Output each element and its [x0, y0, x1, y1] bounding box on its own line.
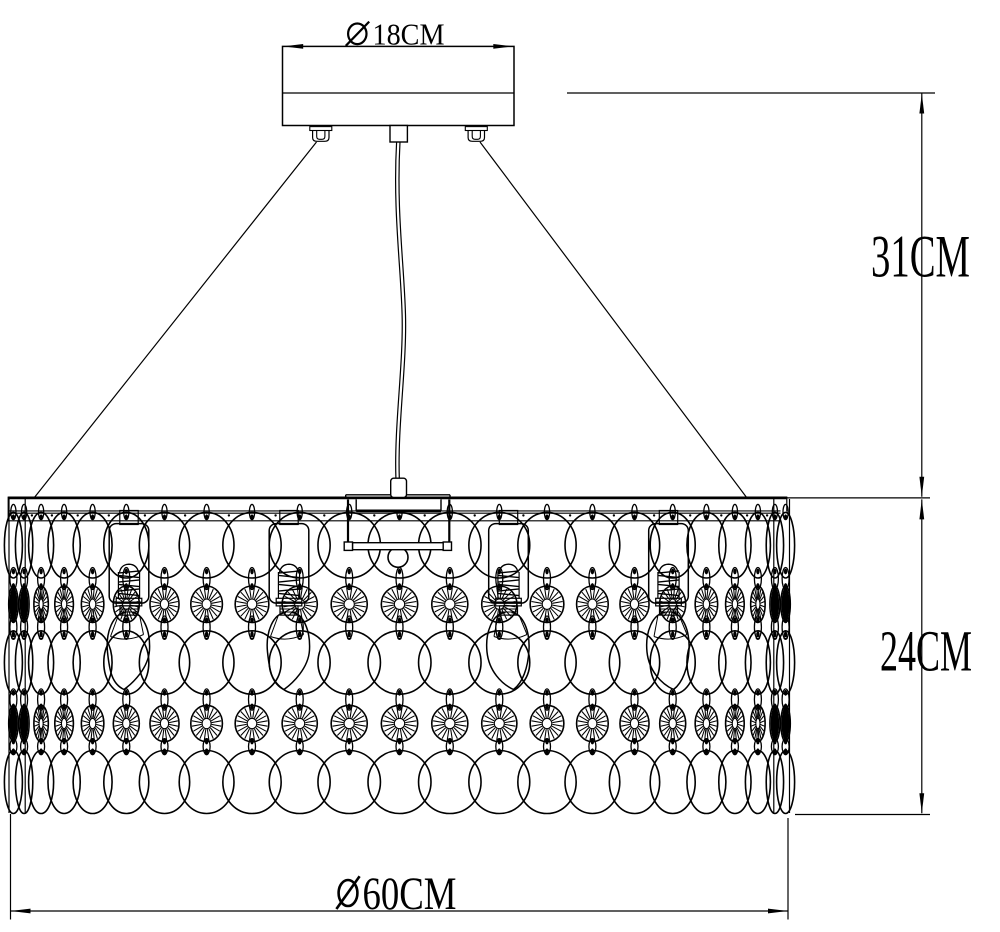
svg-text:18CM: 18CM: [373, 17, 445, 52]
svg-text:31CM: 31CM: [871, 224, 970, 290]
svg-text:60CM: 60CM: [363, 868, 457, 920]
svg-text:24CM: 24CM: [880, 619, 972, 684]
